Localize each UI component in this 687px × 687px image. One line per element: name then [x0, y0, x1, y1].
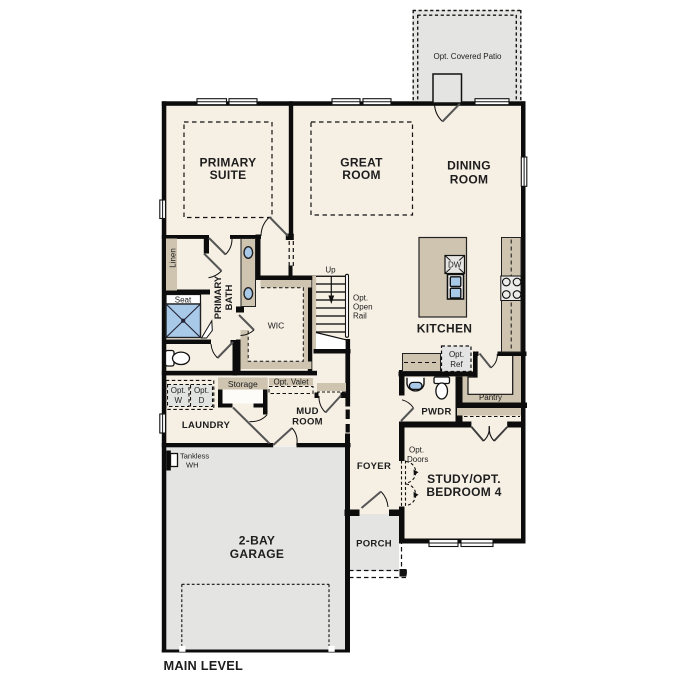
svg-text:2-BAY: 2-BAY: [239, 534, 275, 548]
svg-text:Opt.: Opt.: [171, 386, 186, 395]
svg-text:Seat: Seat: [175, 296, 192, 305]
svg-text:W: W: [175, 396, 183, 405]
svg-text:Open: Open: [353, 303, 373, 312]
svg-text:Pantry: Pantry: [479, 393, 502, 402]
svg-text:Opt.: Opt.: [449, 350, 464, 359]
svg-text:KITCHEN: KITCHEN: [417, 322, 472, 336]
svg-text:PRIMARY: PRIMARY: [213, 275, 224, 319]
svg-text:WH: WH: [186, 461, 199, 470]
svg-text:Linen: Linen: [169, 248, 178, 268]
svg-text:Tankless: Tankless: [180, 452, 209, 461]
svg-text:DINING: DINING: [447, 159, 491, 173]
svg-text:Opt.: Opt.: [409, 446, 424, 455]
svg-text:MAIN LEVEL: MAIN LEVEL: [164, 658, 244, 673]
svg-text:Opt. Covered Patio: Opt. Covered Patio: [433, 52, 502, 61]
svg-text:WIC: WIC: [268, 321, 285, 331]
svg-text:Ref: Ref: [450, 360, 463, 369]
svg-text:DW: DW: [448, 261, 462, 270]
svg-text:GARAGE: GARAGE: [230, 547, 284, 561]
svg-text:D: D: [199, 396, 205, 405]
svg-text:Doors: Doors: [407, 455, 428, 464]
svg-text:Opt.: Opt.: [353, 294, 368, 303]
svg-text:SUITE: SUITE: [210, 168, 247, 182]
svg-text:BATH: BATH: [224, 285, 235, 311]
svg-text:STUDY/OPT.: STUDY/OPT.: [427, 472, 501, 486]
svg-text:ROOM: ROOM: [342, 168, 381, 182]
svg-text:MUD: MUD: [296, 406, 319, 417]
svg-text:Rail: Rail: [353, 312, 367, 321]
svg-text:Opt. Valet: Opt. Valet: [274, 378, 310, 387]
svg-text:FOYER: FOYER: [357, 461, 391, 472]
svg-text:BEDROOM 4: BEDROOM 4: [426, 485, 501, 499]
svg-text:LAUNDRY: LAUNDRY: [182, 420, 231, 431]
svg-text:Storage: Storage: [228, 379, 258, 389]
svg-text:PORCH: PORCH: [356, 539, 392, 550]
svg-text:PWDR: PWDR: [421, 407, 451, 418]
svg-text:ROOM: ROOM: [292, 417, 323, 428]
svg-text:Up: Up: [325, 265, 336, 274]
svg-text:ROOM: ROOM: [450, 173, 489, 187]
svg-text:Opt.: Opt.: [194, 386, 209, 395]
